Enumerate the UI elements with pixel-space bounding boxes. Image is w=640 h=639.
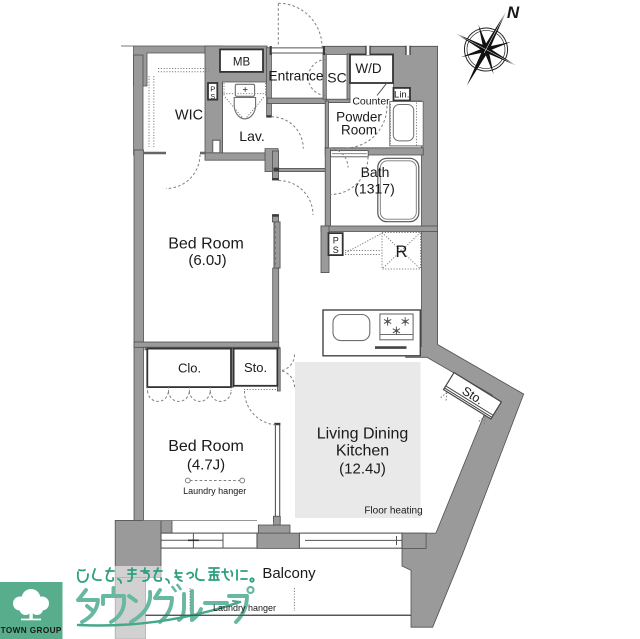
svg-text:Lin.: Lin.	[394, 90, 409, 101]
svg-text:Balcony: Balcony	[262, 565, 316, 582]
svg-text:Kitchen: Kitchen	[336, 443, 389, 460]
svg-text:P: P	[333, 236, 339, 246]
svg-text:S: S	[210, 92, 215, 101]
svg-text:N: N	[507, 3, 520, 22]
svg-text:TOWN GROUP: TOWN GROUP	[1, 626, 62, 635]
svg-text:Counter: Counter	[352, 96, 390, 108]
svg-text:(6.0J): (6.0J)	[188, 252, 226, 269]
svg-text:Laundry hanger: Laundry hanger	[183, 486, 246, 496]
svg-text:S: S	[333, 245, 339, 255]
svg-text:Clo.: Clo.	[178, 361, 201, 376]
svg-text:Bath: Bath	[361, 164, 390, 180]
svg-text:(4.7J): (4.7J)	[187, 457, 225, 474]
svg-text:(12.4J): (12.4J)	[339, 461, 386, 478]
svg-text:Room: Room	[341, 123, 377, 138]
svg-text:MB: MB	[233, 57, 251, 69]
svg-text:Bed Room: Bed Room	[168, 236, 244, 253]
svg-text:Entrance: Entrance	[268, 69, 324, 84]
svg-text:Lav.: Lav.	[239, 128, 264, 144]
svg-text:Living Dining: Living Dining	[317, 426, 409, 443]
svg-text:WIC: WIC	[175, 108, 203, 124]
svg-text:Sto.: Sto.	[244, 360, 267, 375]
svg-text:W/D: W/D	[355, 61, 381, 76]
svg-text:(1317): (1317)	[354, 181, 394, 197]
svg-text:Bed Room: Bed Room	[168, 438, 244, 455]
svg-text:Floor heating: Floor heating	[364, 506, 422, 517]
svg-text:SC: SC	[327, 70, 346, 86]
svg-text:R: R	[396, 243, 408, 261]
svg-text:Laundry hanger: Laundry hanger	[213, 603, 276, 613]
